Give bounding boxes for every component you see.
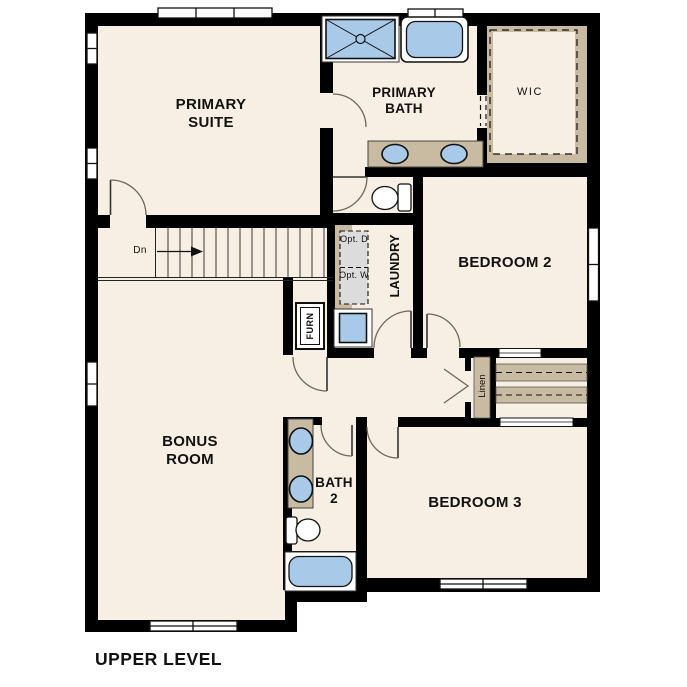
plan-title: UPPER LEVEL xyxy=(95,649,295,670)
label-bedroom2: BEDROOM 2 xyxy=(438,254,572,272)
label-bath2: BATH 2 xyxy=(310,475,358,508)
label-laundry: LAUNDRY xyxy=(359,226,429,306)
wall-linen-south xyxy=(465,418,500,427)
wall-exterior-right xyxy=(587,13,600,592)
wall-suite-bath-north xyxy=(320,26,333,93)
wall-bedroom3-north-b xyxy=(573,418,587,427)
label-bedroom3: BEDROOM 3 xyxy=(408,494,542,512)
label-primary-suite: PRIMARY SUITE xyxy=(156,96,266,133)
wall-bath2-toilet-south xyxy=(285,551,356,557)
label-opt-washer: Opt. W xyxy=(339,270,369,281)
wall-bath-wic-north xyxy=(477,26,487,95)
label-bonus-room: BONUS ROOM xyxy=(138,433,242,470)
wall-linen-west-top xyxy=(465,357,471,371)
wall-hall-north-b xyxy=(411,348,427,358)
wall-wc-laundry xyxy=(320,213,420,225)
wall-furnace-west xyxy=(283,277,293,355)
floor-plan: PRIMARY SUITE PRIMARY BATH WIC BEDROOM 2… xyxy=(0,0,687,687)
label-furnace: FURN xyxy=(300,306,320,346)
wall-bottom-bedroom3 xyxy=(355,578,600,592)
label-stair-dn: Dn xyxy=(128,245,152,257)
wall-suite-south-a xyxy=(98,215,110,228)
label-linen: Linen xyxy=(472,366,492,406)
wall-hall-north-d xyxy=(540,348,587,358)
wall-wic-south xyxy=(470,163,600,177)
label-opt-dryer: Opt. D xyxy=(339,234,369,245)
floor-bonus-extension xyxy=(98,592,285,622)
label-wic: WIC xyxy=(505,86,555,99)
wall-exterior-top xyxy=(85,13,600,26)
label-primary-bath: PRIMARY BATH xyxy=(358,85,450,118)
wall-bath2-north xyxy=(292,417,322,425)
wall-linen-west-bottom xyxy=(465,402,471,418)
wall-stair-laundry xyxy=(327,225,335,353)
wall-bottom-bonus xyxy=(85,620,297,632)
wall-suite-south-b xyxy=(146,215,333,228)
wall-bedroom3-north-a xyxy=(398,417,465,427)
wall-bath2-west xyxy=(283,417,292,590)
wall-vanity-back xyxy=(365,167,483,177)
wall-exterior-left xyxy=(85,13,98,632)
wall-bath-wic-south xyxy=(477,128,487,163)
wall-hall-north-a xyxy=(327,348,374,358)
